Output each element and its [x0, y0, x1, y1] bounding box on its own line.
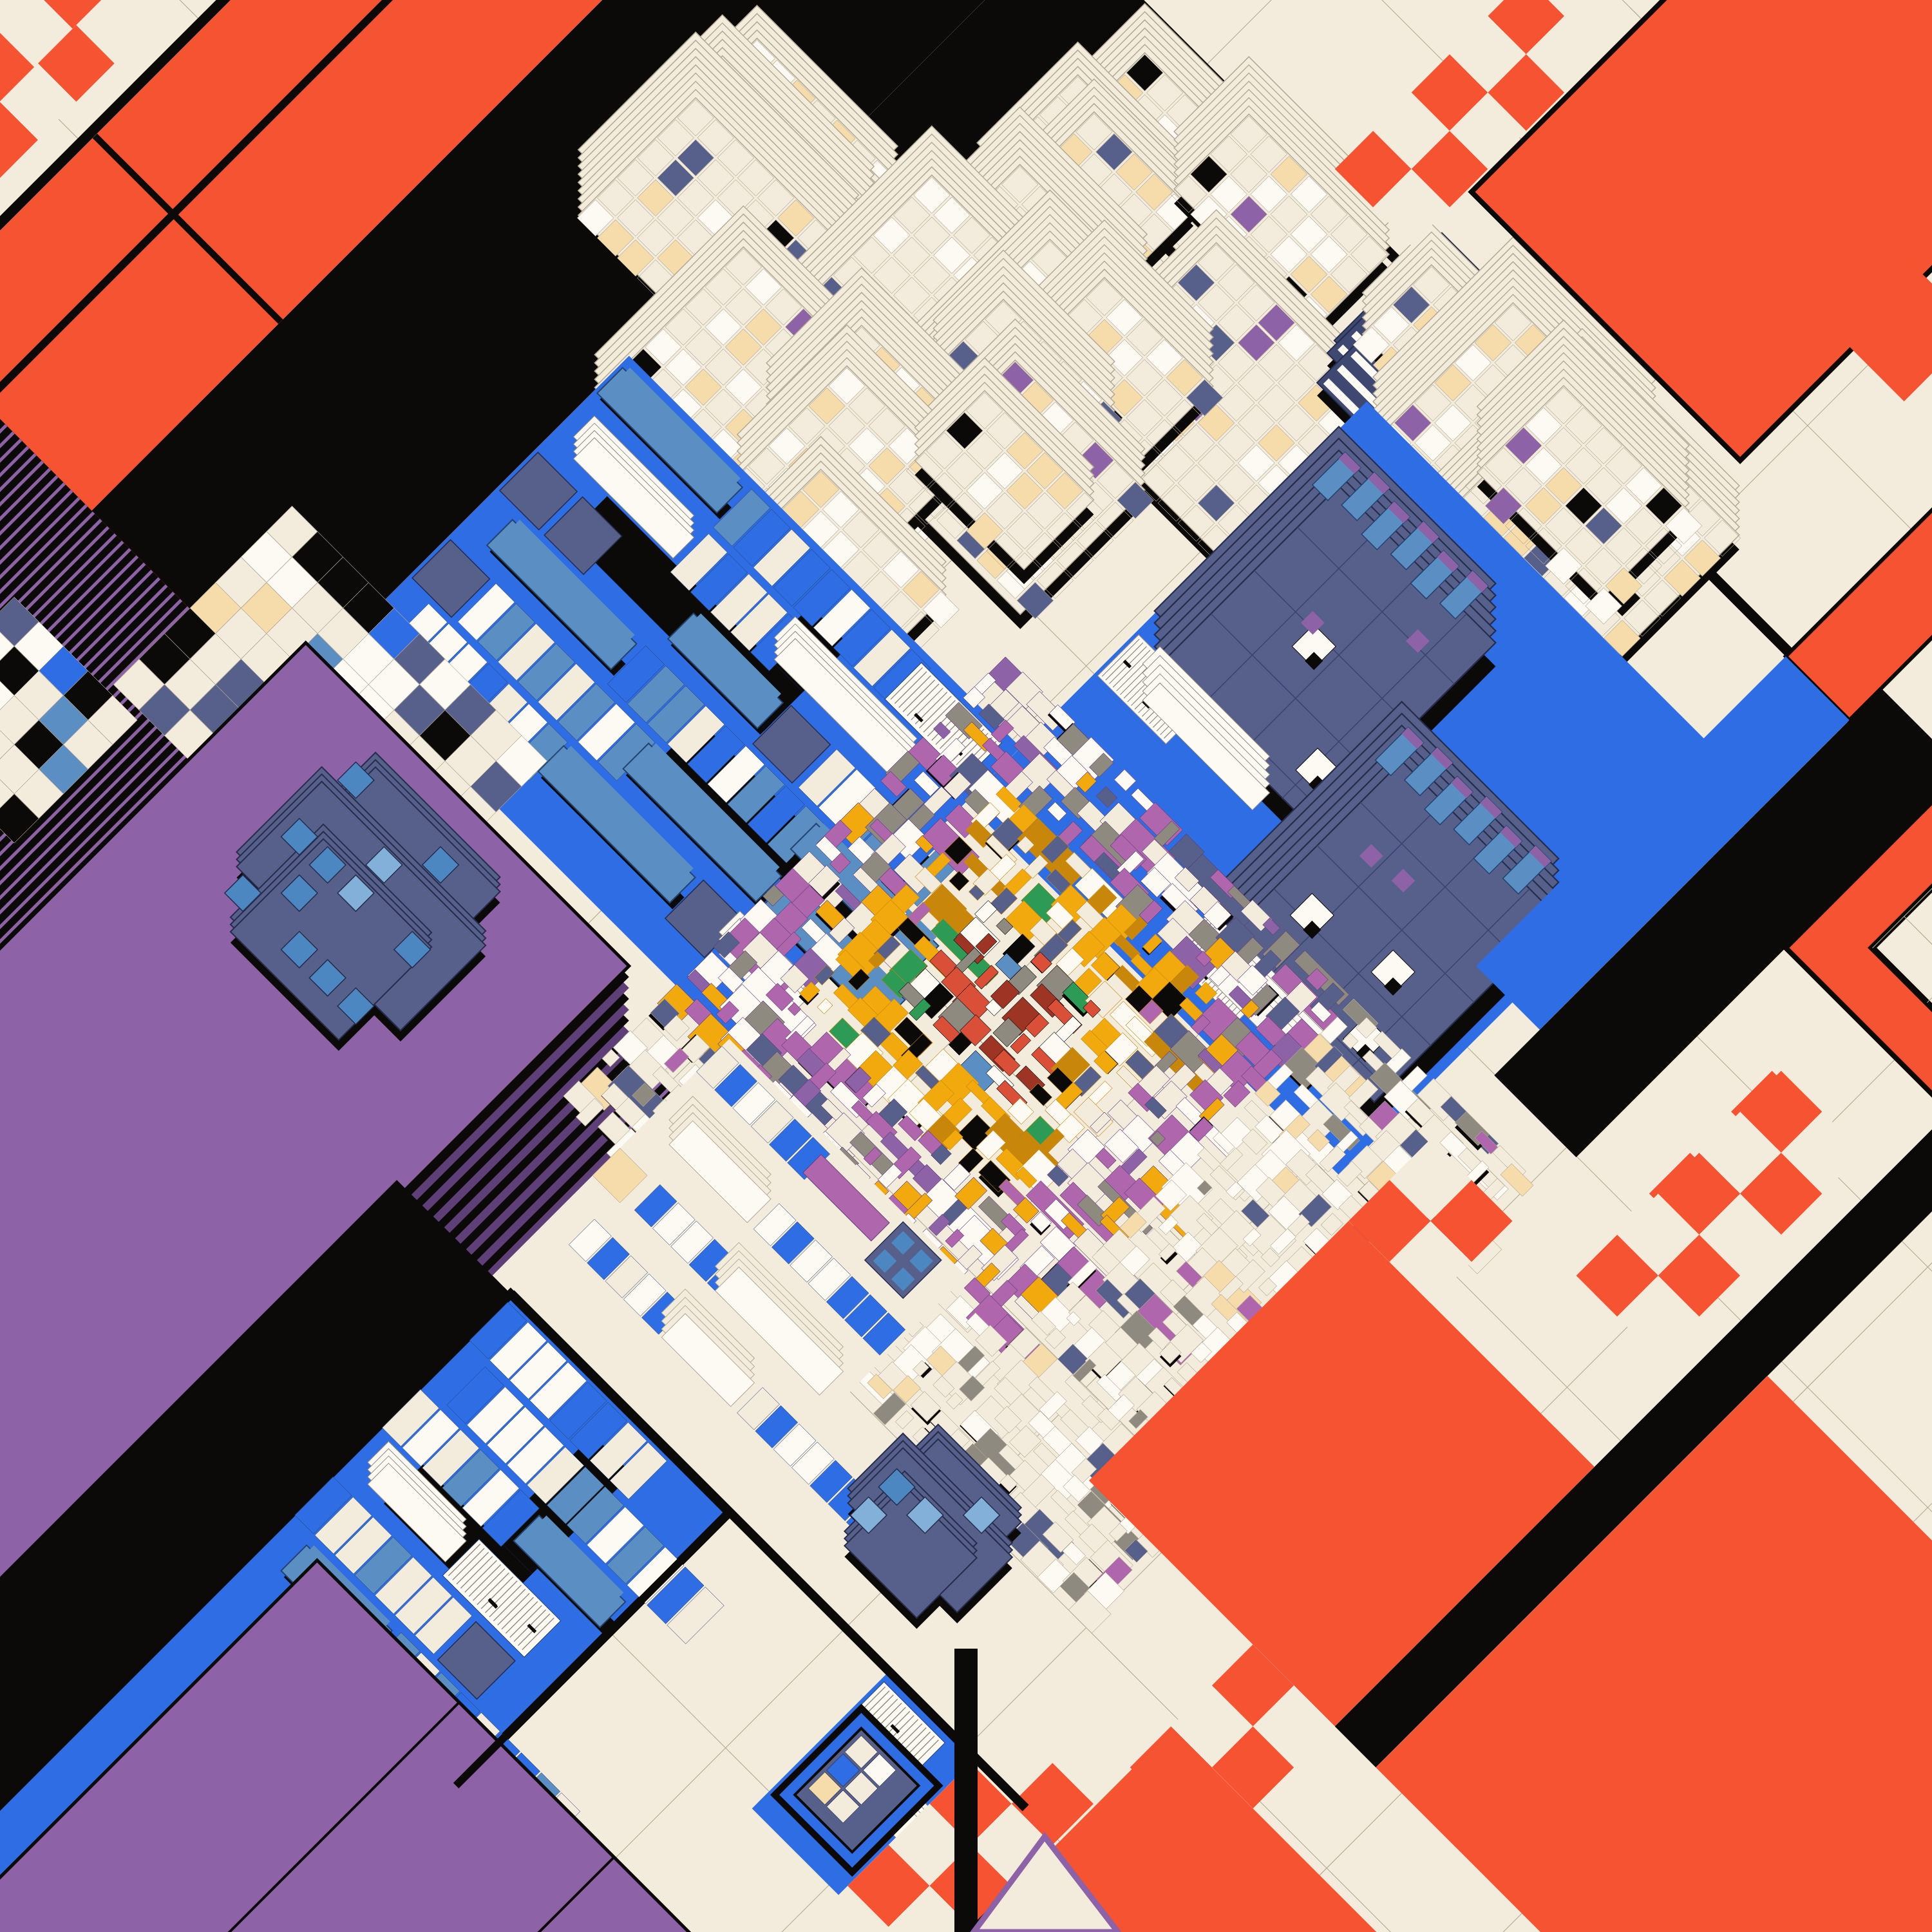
artwork-canvas — [0, 0, 1932, 1932]
generative-isometric-artwork — [0, 0, 1932, 1932]
south-wall-edge — [954, 1649, 978, 1932]
